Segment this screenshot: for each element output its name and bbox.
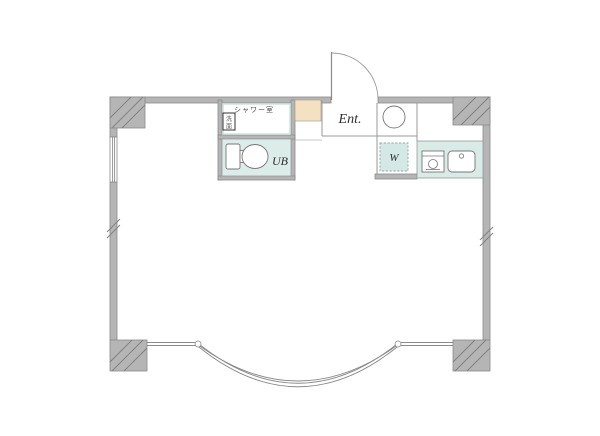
entrance-door [332,52,379,100]
shower-room-label: シャワー室 [234,105,274,114]
left-wall-window [110,137,117,182]
entrance-label: Ent. [338,112,362,127]
shoe-cabinet [295,100,321,121]
corner-block-bottom-right [453,340,490,371]
sink-icon [448,151,475,172]
washbasin-box: 洗 面 [223,113,235,131]
stove-icon [422,151,444,172]
toilet-icon [226,144,268,169]
corner-block-top-right [453,97,490,125]
corner-block-top-left [110,97,145,128]
bottom-window-right [401,343,453,346]
bottom-window-left [147,343,195,346]
bow-window [195,341,401,387]
floorplan-drawing: シャワー室 洗 面 UB Ent. W [0,0,600,436]
floorplan: シャワー室 洗 面 UB Ent. W [0,0,600,436]
corner-block-bottom-left [110,340,147,371]
unit-bath-label: UB [272,154,289,168]
washer-alcove-wall [375,174,417,179]
entrance-door-arc [332,53,379,100]
left-wall-lower [110,182,117,340]
washer-label: W [389,152,399,164]
round-fixture-icon [383,106,405,128]
washbasin-label-bottom: 面 [226,124,232,131]
right-wall [483,97,490,340]
washbasin-label-top: 洗 [226,115,232,123]
